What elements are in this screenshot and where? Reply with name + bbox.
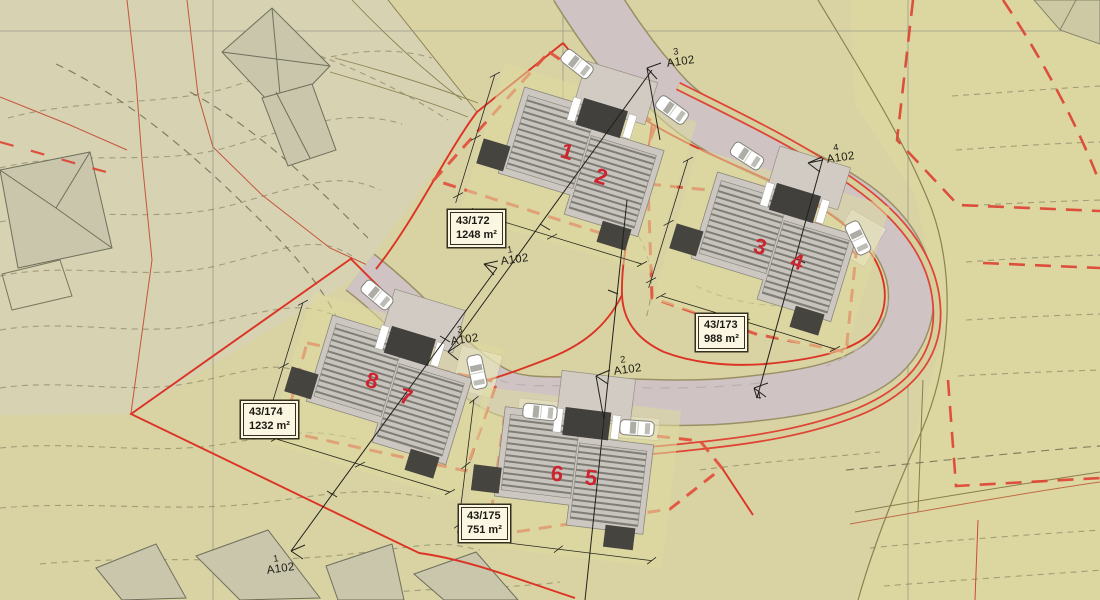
parcel-id: 43/175: [467, 509, 502, 523]
parcel-label-43-175: 43/175 751 m²: [461, 507, 508, 540]
car-icon: [522, 403, 557, 421]
parcel-id: 43/173: [704, 318, 739, 332]
parcel-label-43-173: 43/173 988 m²: [698, 316, 745, 349]
parcel-area: 1248 m²: [456, 228, 497, 242]
plan-drawing: [0, 0, 1100, 600]
car-icon: [620, 419, 655, 436]
parcel-id: 43/174: [249, 405, 290, 419]
site-plan-canvas: 43/172 1248 m² 43/173 988 m² 43/174 1232…: [0, 0, 1100, 600]
section-marker-4-bottom: 4: [747, 391, 762, 404]
parcel-area: 1232 m²: [249, 419, 290, 433]
section-marker-3-top: 3 A102: [665, 44, 696, 70]
parcel-area: 751 m²: [467, 523, 502, 537]
section-marker-1-mid: 1 A102: [499, 242, 530, 268]
parcel-label-43-172: 43/172 1248 m²: [450, 212, 503, 245]
section-marker-2-mid: 2 A102: [612, 352, 643, 378]
parcel-id: 43/172: [456, 214, 497, 228]
section-marker-4-top: 4 A102: [825, 140, 856, 166]
section-marker-3-mid: 3 A102: [449, 322, 480, 348]
parcel-label-43-174: 43/174 1232 m²: [243, 403, 296, 436]
section-marker-1-bottom: 1 A102: [265, 551, 296, 577]
parcel-area: 988 m²: [704, 332, 739, 346]
